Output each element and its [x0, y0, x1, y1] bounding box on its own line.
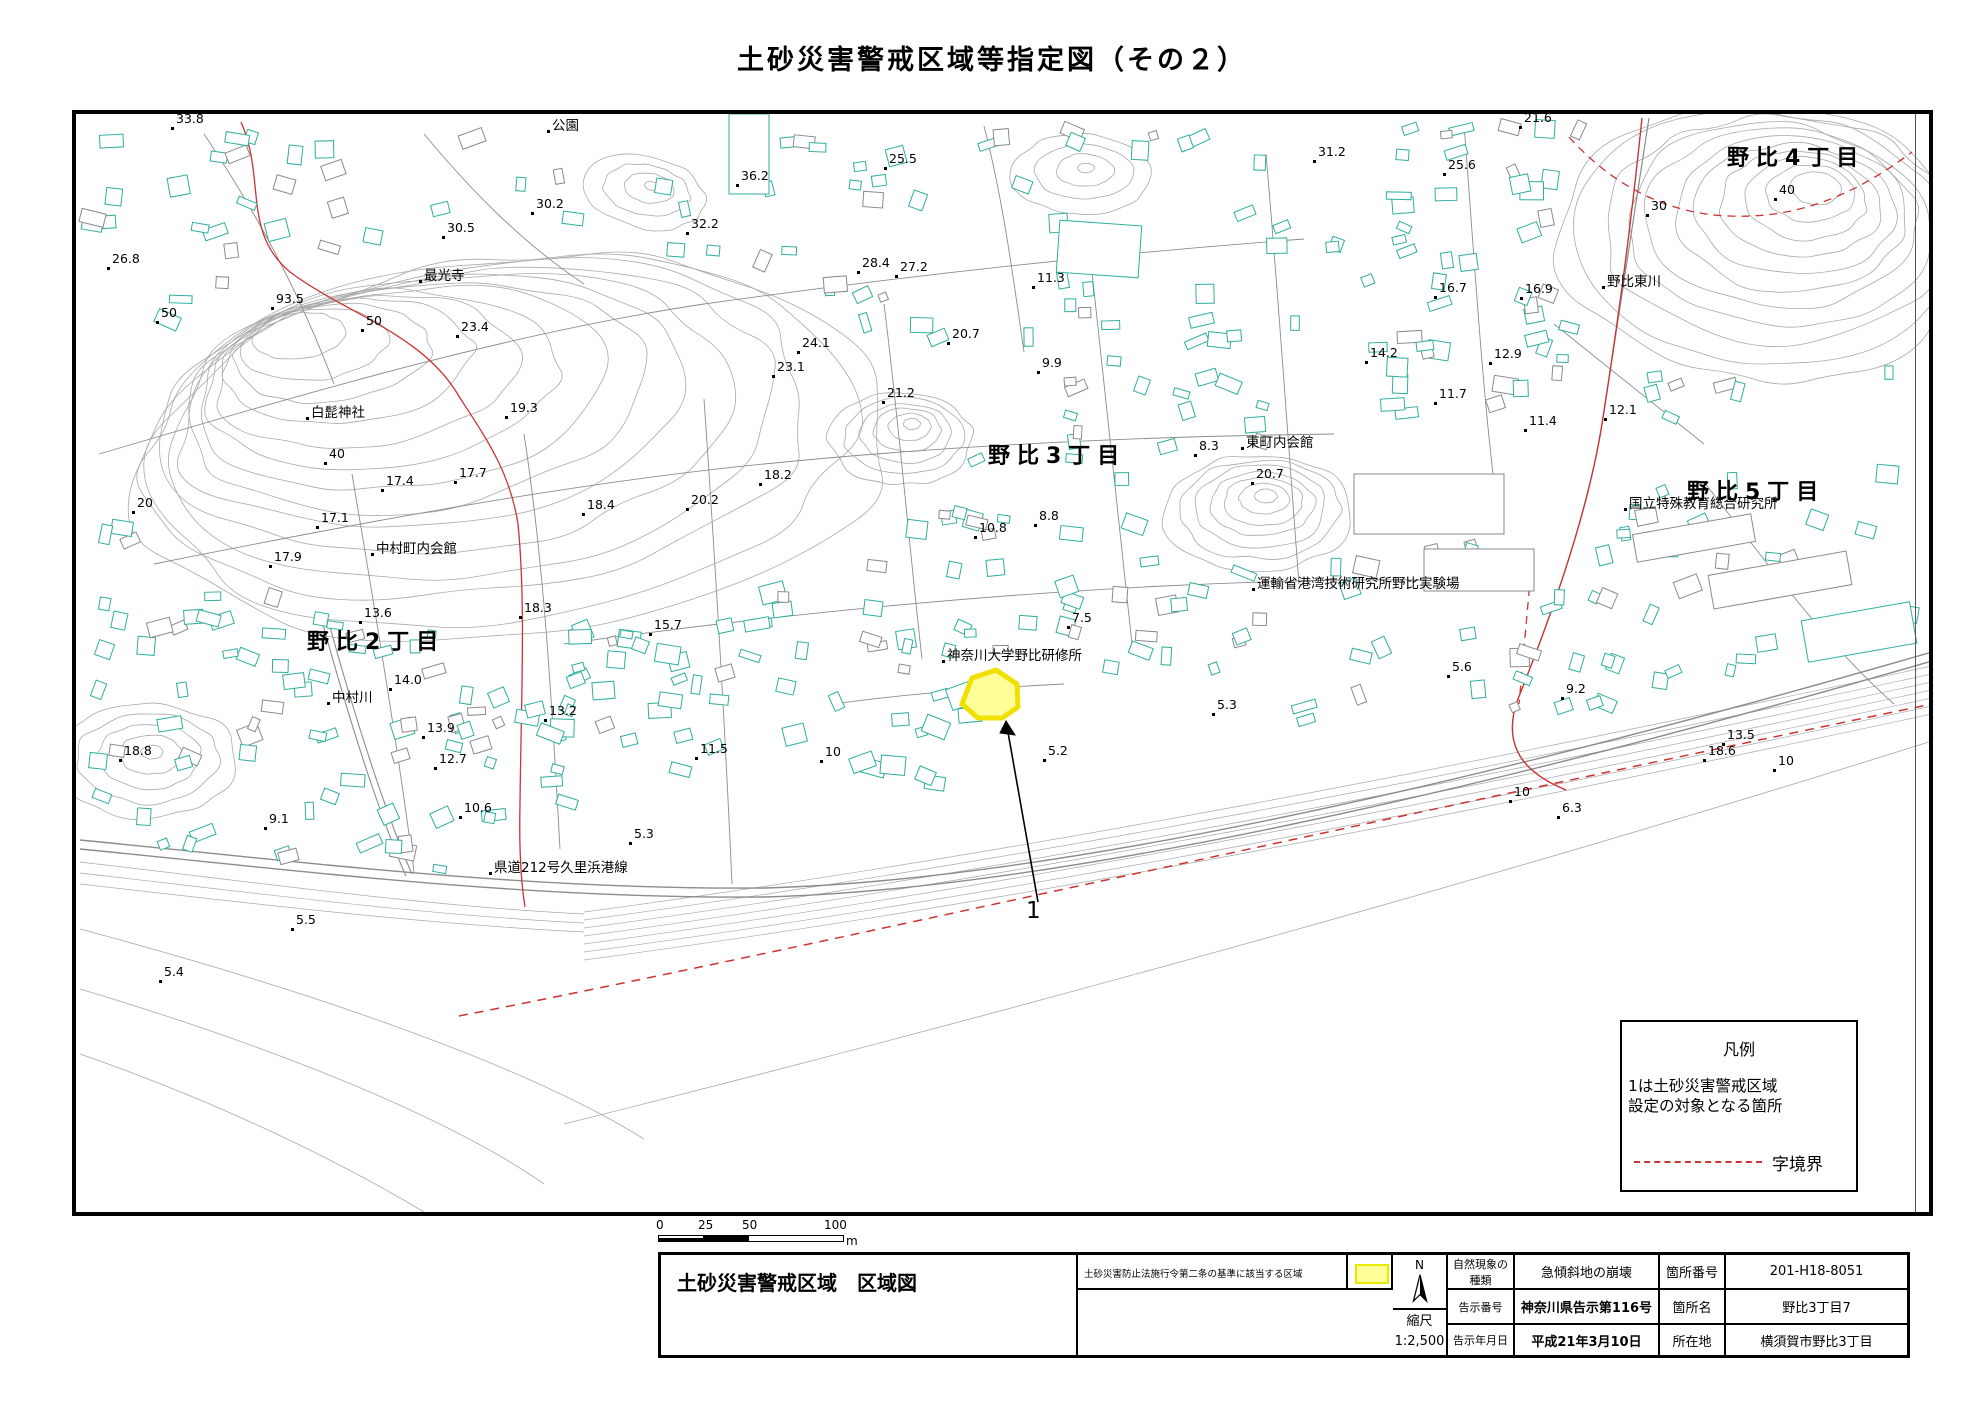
spot-dot-icon — [695, 757, 698, 760]
row-value-phenomenon: 急傾斜地の崩壊 — [1515, 1255, 1660, 1290]
district-label: 野比3丁目 — [988, 438, 1126, 470]
elevation-label-text: 26.8 — [112, 251, 140, 266]
elevation-label-text: 23.4 — [461, 319, 489, 334]
title-block-table: 土砂災害警戒区域 区域図 土砂災害防止法施行令第二条の基準に該当する区域 N 縮… — [658, 1252, 1910, 1358]
spot-dot-icon — [107, 267, 110, 270]
elevation-label-text: 5.4 — [164, 964, 184, 979]
spot-dot-icon — [1037, 371, 1040, 374]
spot-dot-icon — [389, 688, 392, 691]
elevation-label-text: 5.3 — [634, 826, 654, 841]
scale-tick-100: 100 — [824, 1218, 847, 1232]
spot-dot-icon — [1034, 524, 1037, 527]
spot-dot-icon — [381, 489, 384, 492]
elevation-label-text: 18.6 — [1708, 743, 1736, 758]
legend-body: 1は土砂災害警戒区域 設定の対象となる箇所 — [1628, 1076, 1850, 1116]
spot-dot-icon — [1520, 297, 1523, 300]
spot-dot-icon — [1032, 286, 1035, 289]
legend-boundary-label: 字境界 — [1772, 1150, 1823, 1175]
spot-dot-icon — [1774, 198, 1777, 201]
elevation-label-text: 25.5 — [889, 151, 917, 166]
spot-dot-icon — [1212, 713, 1215, 716]
spot-dot-icon — [291, 928, 294, 931]
district-label: 野比2丁目 — [307, 624, 445, 656]
spot-dot-icon — [884, 167, 887, 170]
place-label-text: 中村川 — [332, 686, 373, 706]
spot-dot-icon — [895, 275, 898, 278]
spot-dot-icon — [649, 633, 652, 636]
spot-dot-icon — [1067, 626, 1070, 629]
elevation-label-text: 14.2 — [1370, 345, 1398, 360]
scale-unit: m — [846, 1234, 858, 1248]
row-label-site-number: 箇所番号 — [1660, 1255, 1726, 1290]
spot-dot-icon — [419, 280, 422, 283]
spot-dot-icon — [1252, 588, 1255, 591]
elevation-label-text: 21.2 — [887, 385, 915, 400]
spot-dot-icon — [306, 417, 309, 420]
elevation-label-text: 13.9 — [427, 720, 455, 735]
legend-title: 凡例 — [1622, 1036, 1856, 1060]
spot-dot-icon — [1443, 173, 1446, 176]
spot-dot-icon — [1624, 508, 1627, 511]
spot-dot-icon — [1773, 769, 1776, 772]
elevation-label-text: 20.7 — [952, 326, 980, 341]
page-title: 土砂災害警戒区域等指定図（その２） — [0, 38, 1984, 77]
warning-zone-swatch-icon — [1355, 1264, 1389, 1284]
north-cell: N — [1393, 1255, 1448, 1310]
elevation-label-text: 11.5 — [700, 741, 728, 756]
elevation-label-text: 93.5 — [276, 291, 304, 306]
elevation-label-text: 18.3 — [524, 600, 552, 615]
spot-dot-icon — [947, 342, 950, 345]
elevation-label-text: 19.3 — [510, 400, 538, 415]
place-label-text: 白髭神社 — [311, 401, 365, 421]
spot-dot-icon — [1509, 800, 1512, 803]
legend-box: 凡例 1は土砂災害警戒区域 設定の対象となる箇所 字境界 — [1620, 1020, 1858, 1192]
elevation-label-text: 10 — [1778, 753, 1794, 768]
spot-dot-icon — [1043, 759, 1046, 762]
spot-dot-icon — [1519, 126, 1522, 129]
elevation-label-text: 18.2 — [764, 467, 792, 482]
place-label-text: 公園 — [552, 114, 579, 134]
spot-dot-icon — [797, 351, 800, 354]
elevation-label-text: 32.2 — [691, 216, 719, 231]
elevation-label-text: 31.2 — [1318, 144, 1346, 159]
boundary-dashed-line-icon — [1634, 1161, 1762, 1163]
spot-dot-icon — [1434, 296, 1437, 299]
spot-dot-icon — [1646, 214, 1649, 217]
elevation-label-text: 18.4 — [587, 497, 615, 512]
spot-dot-icon — [974, 536, 977, 539]
row-value-site-number: 201-H18-8051 — [1726, 1255, 1907, 1290]
elevation-label-text: 13.5 — [1727, 727, 1755, 742]
elevation-label-text: 50 — [366, 313, 382, 328]
scale-bar-graphic — [658, 1235, 844, 1242]
elevation-label-text: 18.8 — [124, 743, 152, 758]
elevation-label-text: 11.7 — [1439, 386, 1467, 401]
elevation-label-text: 20.7 — [1256, 466, 1284, 481]
elevation-label-text: 10 — [1514, 784, 1530, 799]
elevation-label-text: 27.2 — [900, 259, 928, 274]
elevation-label-text: 28.4 — [862, 255, 890, 270]
spot-dot-icon — [582, 513, 585, 516]
place-label-text: 最光寺 — [424, 264, 465, 284]
spot-dot-icon — [1365, 361, 1368, 364]
spot-dot-icon — [456, 335, 459, 338]
spot-dot-icon — [686, 232, 689, 235]
spot-dot-icon — [1561, 697, 1564, 700]
legend-body-line2: 設定の対象となる箇所 — [1628, 1096, 1850, 1116]
elevation-label-text: 13.2 — [549, 703, 577, 718]
map-inner-neatline — [1915, 114, 1916, 1212]
place-label-text: 国立特殊教育総合研究所 — [1629, 492, 1778, 512]
north-label: N — [1393, 1258, 1446, 1272]
place-label-text: 県道212号久里浜港線 — [494, 856, 628, 876]
spot-dot-icon — [156, 321, 159, 324]
scale-bar: 0 25 50 100 m — [656, 1218, 886, 1252]
row-label-location: 所在地 — [1660, 1325, 1726, 1355]
elevation-label-text: 5.5 — [296, 912, 316, 927]
north-arrow-icon — [1407, 1272, 1433, 1304]
elevation-label-text: 17.9 — [274, 549, 302, 564]
scale-label: 縮尺 — [1393, 1312, 1446, 1332]
spot-dot-icon — [1602, 286, 1605, 289]
spot-dot-icon — [1489, 362, 1492, 365]
scale-bar-segment — [703, 1236, 749, 1241]
elevation-label-text: 23.1 — [777, 359, 805, 374]
spot-dot-icon — [882, 401, 885, 404]
spot-dot-icon — [519, 616, 522, 619]
scale-cell: 縮尺 1:2,500 — [1393, 1310, 1448, 1355]
elevation-label-text: 12.1 — [1609, 402, 1637, 417]
elevation-label-text: 8.8 — [1039, 508, 1059, 523]
elevation-label-text: 7.5 — [1072, 610, 1092, 625]
elevation-label-text: 40 — [329, 446, 345, 461]
place-label-text: 野比東川 — [1607, 270, 1661, 290]
spot-dot-icon — [327, 702, 330, 705]
elevation-label-text: 25.6 — [1448, 157, 1476, 172]
row-value-site-name: 野比3丁目7 — [1726, 1290, 1907, 1325]
elevation-label-text: 36.2 — [741, 168, 769, 183]
legend-body-line1: 1は土砂災害警戒区域 — [1628, 1076, 1850, 1096]
elevation-label-text: 30.5 — [447, 220, 475, 235]
elevation-label-text: 12.9 — [1494, 346, 1522, 361]
elevation-label-text: 9.2 — [1566, 681, 1586, 696]
spot-dot-icon — [1434, 402, 1437, 405]
elevation-label-text: 9.9 — [1042, 355, 1062, 370]
elevation-label-text: 40 — [1779, 182, 1795, 197]
spot-dot-icon — [531, 212, 534, 215]
elevation-label-text: 11.3 — [1037, 270, 1065, 285]
place-label-text: 中村町内会館 — [376, 537, 457, 557]
spot-dot-icon — [442, 236, 445, 239]
spot-dot-icon — [171, 127, 174, 130]
elevation-label-text: 12.7 — [439, 751, 467, 766]
spot-dot-icon — [371, 553, 374, 556]
elevation-label-text: 10.8 — [979, 520, 1007, 535]
spot-dot-icon — [316, 526, 319, 529]
criteria-swatch-cell — [1348, 1255, 1393, 1290]
spot-dot-icon — [264, 827, 267, 830]
elevation-label-text: 50 — [161, 305, 177, 320]
row-value-notice-number: 神奈川県告示第116号 — [1515, 1290, 1660, 1325]
spot-dot-icon — [629, 842, 632, 845]
map-sheet-title: 土砂災害警戒区域 区域図 — [661, 1255, 1078, 1355]
spot-dot-icon — [271, 307, 274, 310]
designated-site-marker: 1 — [1026, 898, 1041, 924]
elevation-label-text: 24.1 — [802, 335, 830, 350]
scale-tick-0: 0 — [656, 1218, 664, 1232]
elevation-label-text: 14.0 — [394, 672, 422, 687]
spot-dot-icon — [1703, 759, 1706, 762]
spot-dot-icon — [1447, 675, 1450, 678]
scale-tick-50: 50 — [742, 1218, 757, 1232]
row-label-site-name: 箇所名 — [1660, 1290, 1726, 1325]
elevation-label-text: 20 — [137, 495, 153, 510]
spot-dot-icon — [489, 872, 492, 875]
elevation-label-text: 13.6 — [364, 605, 392, 620]
elevation-label-text: 9.1 — [269, 811, 289, 826]
scale-bar-segment — [659, 1238, 703, 1241]
hazard-map-page: 土砂災害警戒区域等指定図（その２） 野比4丁目野比3丁目野比5丁目野比2丁目公園… — [0, 0, 1984, 1403]
spot-dot-icon — [132, 511, 135, 514]
elevation-label-text: 5.2 — [1048, 743, 1068, 758]
designated-area-highlight — [962, 670, 1018, 718]
spot-dot-icon — [269, 565, 272, 568]
elevation-label-text: 6.3 — [1562, 800, 1582, 815]
row-value-location: 横須賀市野比3丁目 — [1726, 1325, 1907, 1355]
elevation-label-text: 16.7 — [1439, 280, 1467, 295]
elevation-label-text: 5.6 — [1452, 659, 1472, 674]
elevation-label-text: 10 — [825, 744, 841, 759]
spot-dot-icon — [1524, 429, 1527, 432]
spot-dot-icon — [942, 660, 945, 663]
spot-dot-icon — [505, 416, 508, 419]
district-label: 野比4丁目 — [1727, 140, 1865, 172]
spot-dot-icon — [547, 130, 550, 133]
scale-tick-25: 25 — [698, 1218, 713, 1232]
elevation-label-text: 30 — [1651, 198, 1667, 213]
elevation-label-text: 17.7 — [459, 465, 487, 480]
spot-dot-icon — [454, 481, 457, 484]
elevation-label-text: 8.3 — [1199, 438, 1219, 453]
spot-dot-icon — [772, 375, 775, 378]
spot-dot-icon — [686, 508, 689, 511]
row-label-notice-number: 告示番号 — [1448, 1290, 1515, 1325]
elevation-label-text: 10.6 — [464, 800, 492, 815]
spot-dot-icon — [759, 483, 762, 486]
spot-dot-icon — [1604, 418, 1607, 421]
spot-dot-icon — [820, 760, 823, 763]
spot-dot-icon — [119, 759, 122, 762]
spot-dot-icon — [1194, 454, 1197, 457]
spot-dot-icon — [324, 462, 327, 465]
spot-dot-icon — [422, 736, 425, 739]
row-label-notice-date: 告示年月日 — [1448, 1325, 1515, 1355]
spot-dot-icon — [1241, 447, 1244, 450]
spot-dot-icon — [459, 816, 462, 819]
elevation-label-text: 11.4 — [1529, 413, 1557, 428]
elevation-label-text: 15.7 — [654, 617, 682, 632]
elevation-label-text: 20.2 — [691, 492, 719, 507]
row-label-phenomenon: 自然現象の種類 — [1448, 1255, 1515, 1290]
place-label-text: 運輸省港湾技術研究所野比実験場 — [1257, 572, 1460, 592]
spot-dot-icon — [159, 980, 162, 983]
elevation-label-text: 21.6 — [1524, 110, 1552, 125]
spot-dot-icon — [857, 271, 860, 274]
elevation-label-text: 17.4 — [386, 473, 414, 488]
row-value-notice-date: 平成21年3月10日 — [1515, 1325, 1660, 1355]
spot-dot-icon — [1557, 816, 1560, 819]
spot-dot-icon — [359, 621, 362, 624]
scale-value: 1:2,500 — [1393, 1332, 1446, 1352]
elevation-label-text: 16.9 — [1525, 281, 1553, 296]
elevation-label-text: 30.2 — [536, 196, 564, 211]
elevation-label-text: 5.3 — [1217, 697, 1237, 712]
spot-dot-icon — [544, 719, 547, 722]
place-label-text: 神奈川大学野比研修所 — [947, 644, 1082, 664]
spot-dot-icon — [1251, 482, 1254, 485]
spot-dot-icon — [1313, 160, 1316, 163]
criteria-text: 土砂災害防止法施行令第二条の基準に該当する区域 — [1078, 1255, 1348, 1290]
spot-dot-icon — [361, 329, 364, 332]
elevation-label-text: 17.1 — [321, 510, 349, 525]
place-label-text: 東町内会館 — [1246, 431, 1314, 451]
spot-dot-icon — [736, 184, 739, 187]
spot-dot-icon — [434, 767, 437, 770]
elevation-label-text: 33.8 — [176, 111, 204, 126]
